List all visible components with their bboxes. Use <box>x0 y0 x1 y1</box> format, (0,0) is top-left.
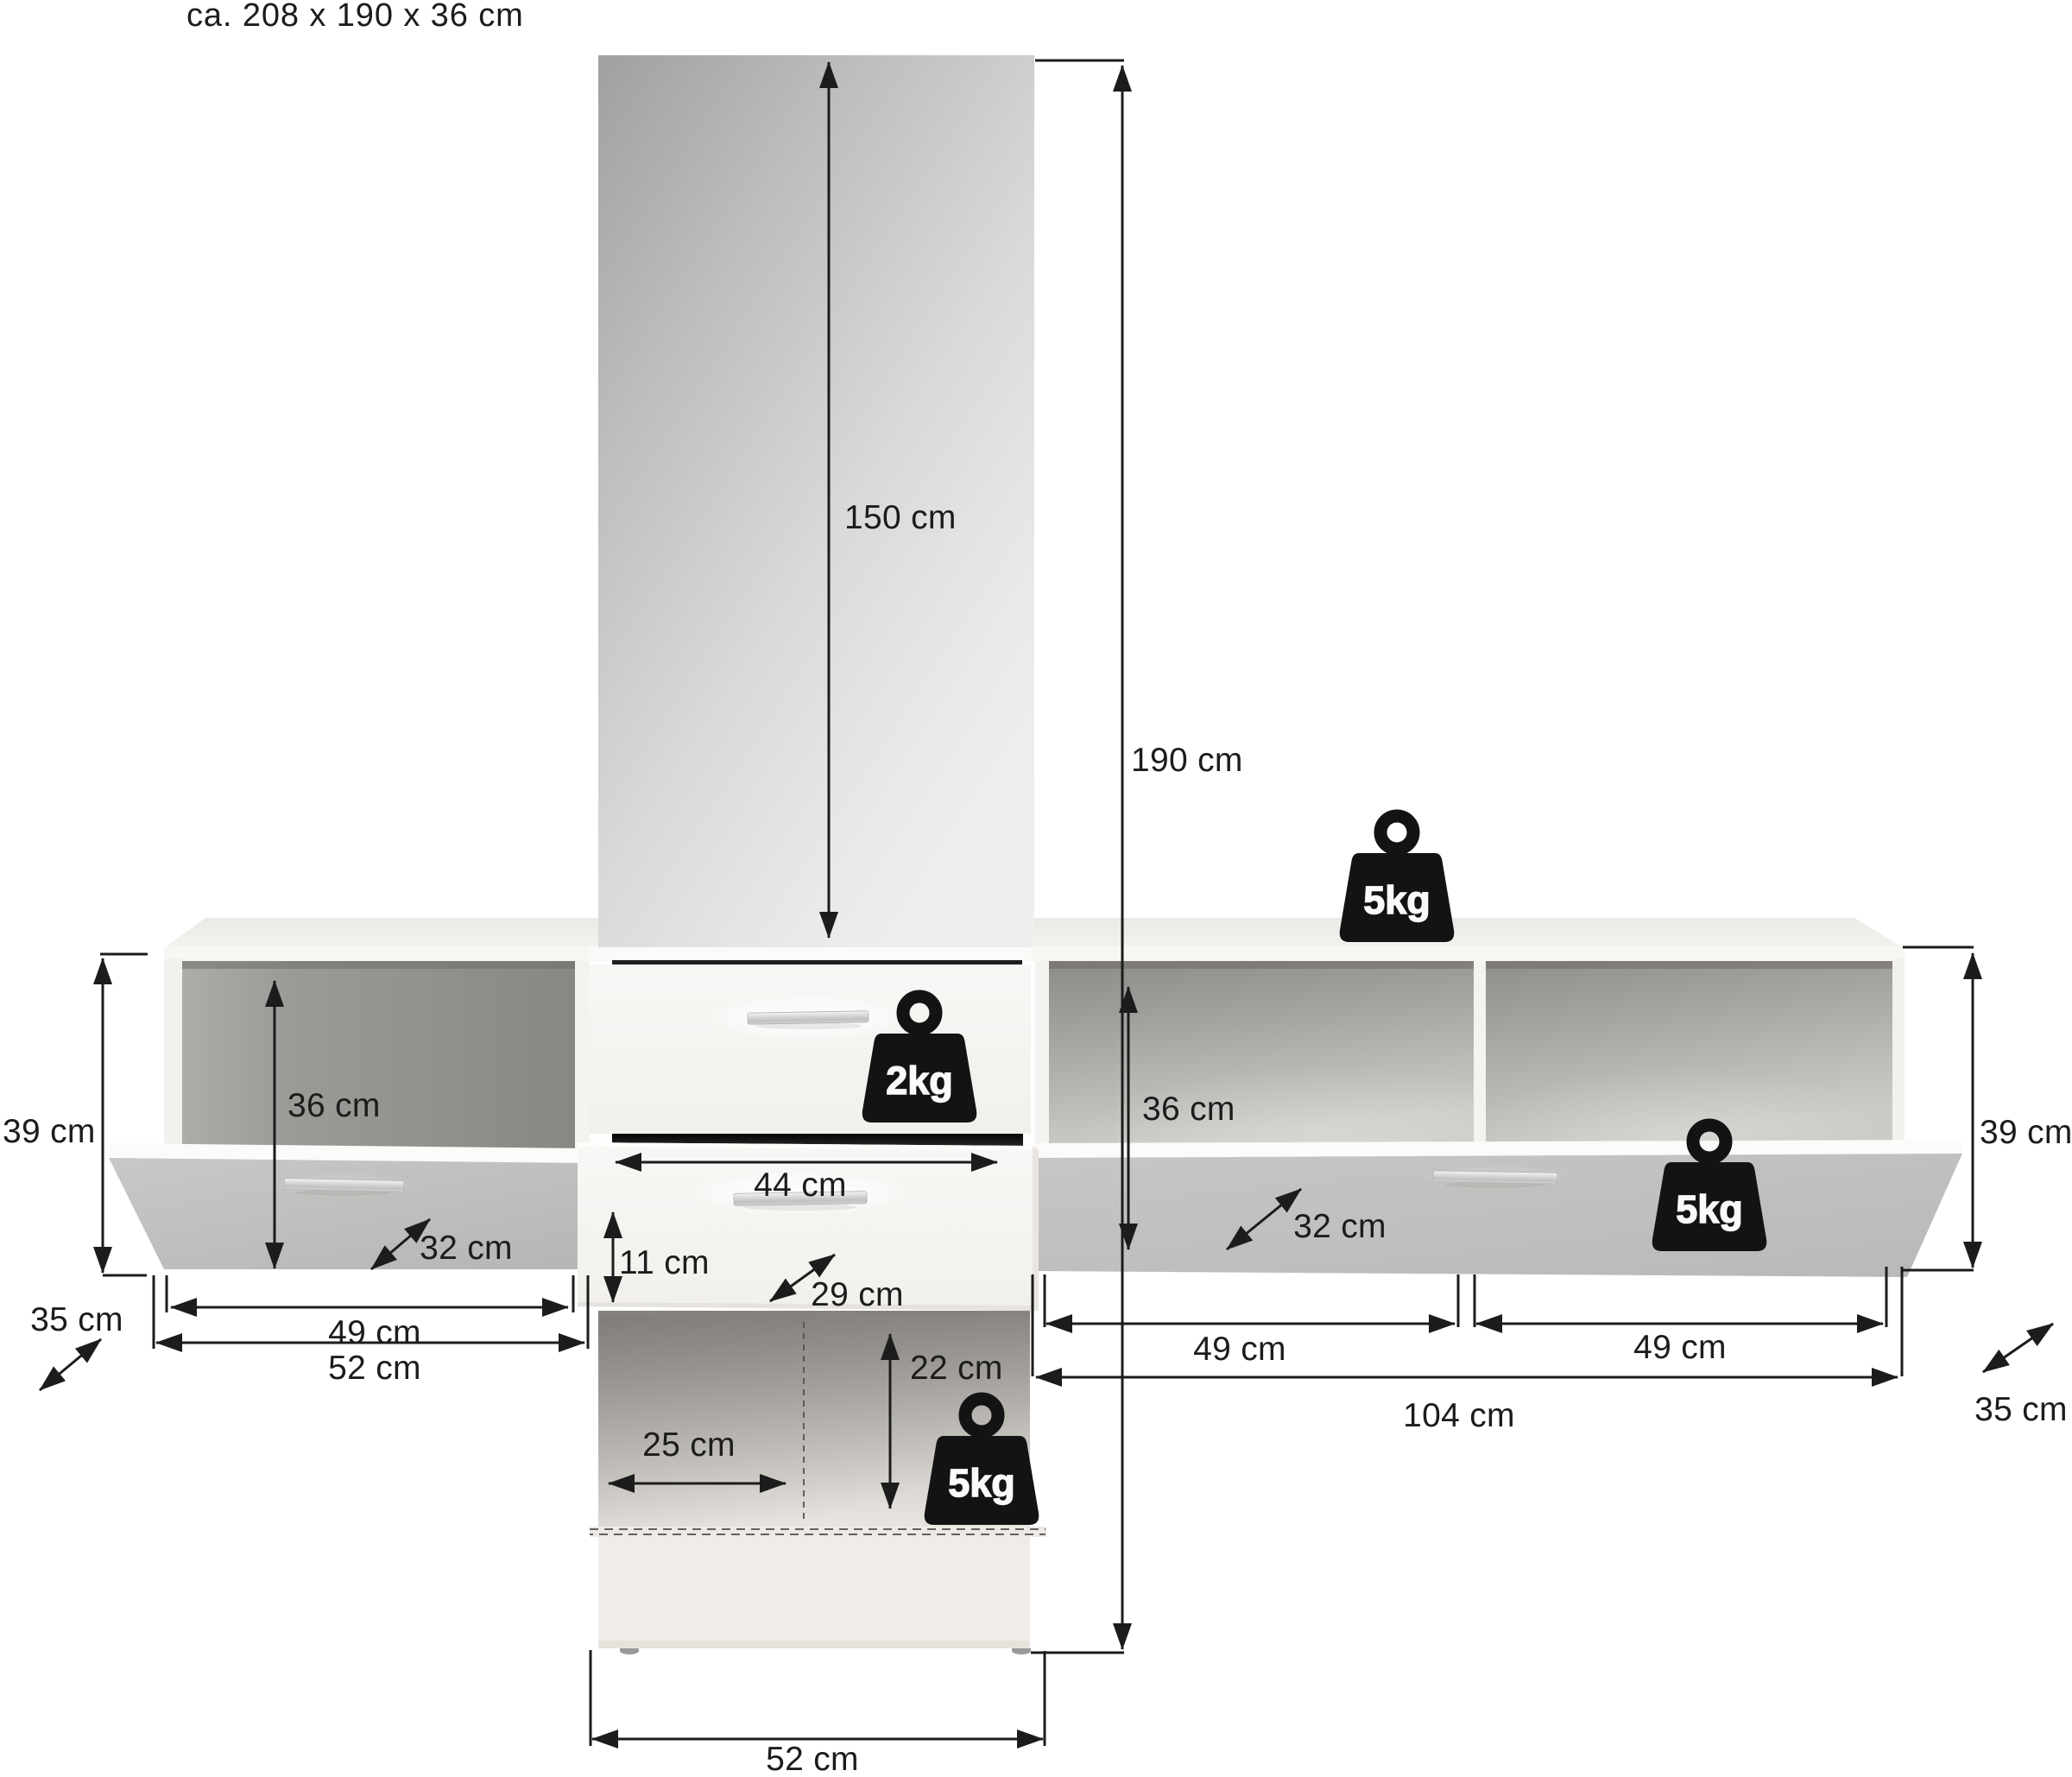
svg-text:35 cm: 35 cm <box>1974 1391 2068 1428</box>
svg-text:2kg: 2kg <box>886 1059 953 1103</box>
svg-text:25 cm: 25 cm <box>642 1426 736 1464</box>
svg-text:52 cm: 52 cm <box>328 1350 421 1387</box>
svg-text:36 cm: 36 cm <box>1142 1091 1235 1128</box>
svg-text:104 cm: 104 cm <box>1403 1397 1515 1434</box>
svg-text:36 cm: 36 cm <box>287 1087 381 1124</box>
svg-text:5kg: 5kg <box>1676 1187 1743 1231</box>
svg-text:5kg: 5kg <box>948 1461 1015 1505</box>
svg-text:35 cm: 35 cm <box>30 1301 123 1338</box>
svg-text:39 cm: 39 cm <box>1980 1114 2072 1151</box>
svg-text:44 cm: 44 cm <box>754 1167 847 1204</box>
svg-text:5kg: 5kg <box>1363 878 1431 922</box>
svg-text:32 cm: 32 cm <box>1293 1208 1387 1245</box>
svg-text:49 cm: 49 cm <box>328 1314 421 1351</box>
svg-text:11 cm: 11 cm <box>619 1244 710 1281</box>
svg-text:52 cm: 52 cm <box>766 1741 859 1777</box>
svg-text:22 cm: 22 cm <box>910 1350 1003 1387</box>
svg-text:150 cm: 150 cm <box>844 499 957 536</box>
svg-text:29 cm: 29 cm <box>811 1276 904 1313</box>
svg-text:49 cm: 49 cm <box>1633 1329 1727 1366</box>
svg-text:49 cm: 49 cm <box>1193 1331 1286 1368</box>
svg-text:ca. 208 x 190 x 36 cm: ca. 208 x 190 x 36 cm <box>186 0 524 34</box>
svg-text:39 cm: 39 cm <box>3 1113 96 1150</box>
svg-text:32 cm: 32 cm <box>420 1230 513 1267</box>
svg-text:190 cm: 190 cm <box>1131 742 1243 779</box>
